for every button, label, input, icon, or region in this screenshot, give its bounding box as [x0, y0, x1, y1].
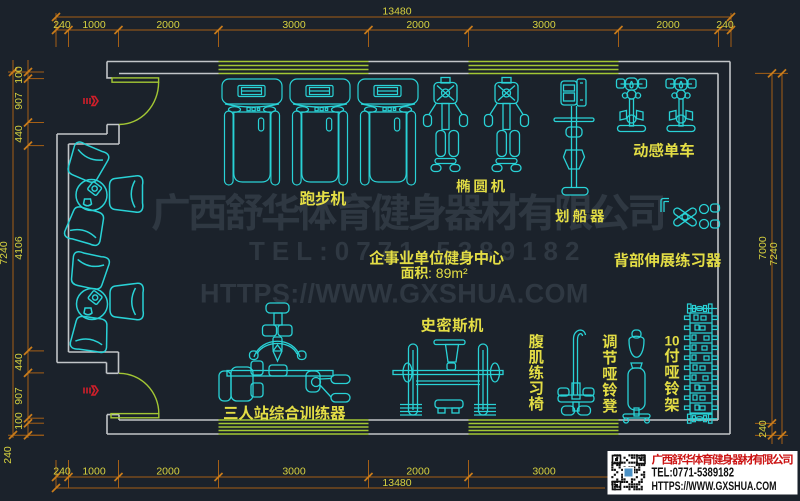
svg-text:1000: 1000 [82, 466, 106, 478]
svg-text:100: 100 [13, 412, 25, 430]
svg-text:2000: 2000 [156, 466, 180, 478]
svg-text:13480: 13480 [382, 6, 411, 18]
svg-text:7240: 7240 [768, 242, 780, 266]
svg-text:13480: 13480 [382, 477, 411, 489]
svg-text:HTTPS://WWW.GXSHUA.COM: HTTPS://WWW.GXSHUA.COM [652, 479, 777, 493]
svg-text:2000: 2000 [406, 466, 430, 478]
svg-text:7240: 7240 [0, 241, 10, 265]
svg-text:3000: 3000 [532, 466, 556, 478]
svg-text:3000: 3000 [532, 19, 556, 31]
svg-text:3000: 3000 [282, 19, 306, 31]
svg-text:10: 10 [664, 334, 679, 349]
svg-text:2000: 2000 [656, 19, 680, 31]
svg-text:240: 240 [53, 466, 71, 478]
svg-text:240: 240 [2, 446, 14, 464]
svg-text:100: 100 [13, 66, 25, 84]
svg-text:907: 907 [13, 387, 25, 405]
svg-text:4106: 4106 [13, 236, 25, 260]
svg-text:1000: 1000 [82, 19, 106, 31]
svg-text:440: 440 [13, 353, 25, 371]
svg-text:3000: 3000 [282, 466, 306, 478]
svg-text:240: 240 [757, 420, 769, 438]
svg-text:240: 240 [53, 19, 71, 31]
svg-text:: 89m²: : 89m² [428, 265, 468, 281]
svg-text:2000: 2000 [156, 19, 180, 31]
svg-text:240: 240 [716, 19, 734, 31]
svg-text:TEL:0771-5389182: TEL:0771-5389182 [652, 466, 735, 480]
svg-text:907: 907 [13, 92, 25, 110]
svg-text:HTTPS://WWW.GXSHUA.COM: HTTPS://WWW.GXSHUA.COM [200, 279, 589, 309]
svg-text:2000: 2000 [406, 19, 430, 31]
svg-text:440: 440 [13, 125, 25, 143]
